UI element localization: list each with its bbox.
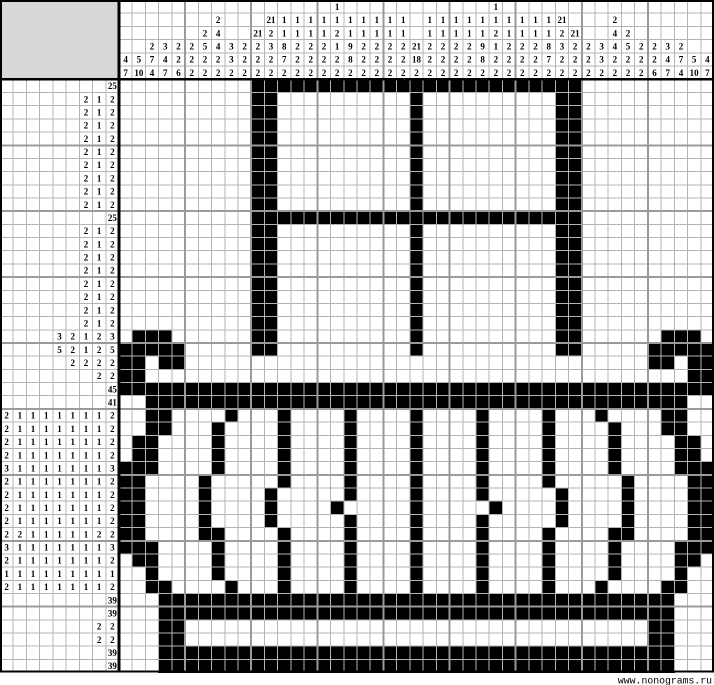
svg-text:2: 2 [4, 411, 9, 421]
svg-text:1: 1 [308, 15, 313, 25]
svg-text:2: 2 [308, 68, 313, 78]
svg-text:1: 1 [533, 28, 538, 38]
svg-text:1: 1 [31, 503, 36, 513]
svg-text:2: 2 [308, 41, 313, 51]
svg-text:1: 1 [97, 107, 102, 117]
svg-text:21: 21 [571, 28, 581, 38]
svg-text:1: 1 [70, 463, 75, 473]
svg-text:21: 21 [253, 28, 263, 38]
svg-text:1: 1 [70, 450, 75, 460]
svg-text:3: 3 [229, 55, 234, 65]
svg-text:1: 1 [84, 437, 89, 447]
svg-text:2: 2 [110, 556, 115, 566]
svg-text:2: 2 [176, 41, 181, 51]
svg-text:1: 1 [57, 516, 62, 526]
svg-text:5: 5 [626, 41, 631, 51]
svg-text:10: 10 [134, 68, 144, 78]
svg-text:2: 2 [97, 635, 102, 645]
svg-text:4: 4 [679, 68, 684, 78]
svg-text:1: 1 [454, 28, 459, 38]
svg-text:2: 2 [454, 68, 459, 78]
svg-text:2: 2 [533, 55, 538, 65]
svg-text:8: 8 [546, 41, 551, 51]
svg-text:1: 1 [520, 28, 525, 38]
svg-text:1: 1 [97, 582, 102, 592]
svg-text:2: 2 [388, 55, 393, 65]
svg-text:2: 2 [70, 345, 75, 355]
svg-text:1: 1 [97, 450, 102, 460]
svg-text:1: 1 [97, 121, 102, 131]
svg-text:1: 1 [18, 450, 23, 460]
svg-text:2: 2 [110, 437, 115, 447]
svg-text:2: 2 [322, 41, 327, 51]
svg-text:2: 2 [150, 41, 155, 51]
svg-text:1: 1 [18, 543, 23, 553]
svg-text:45: 45 [108, 384, 118, 394]
svg-text:2: 2 [84, 147, 89, 157]
svg-text:1: 1 [110, 569, 115, 579]
svg-text:2: 2 [256, 68, 261, 78]
svg-text:3: 3 [665, 41, 670, 51]
svg-text:2: 2 [70, 332, 75, 342]
svg-text:1: 1 [84, 529, 89, 539]
svg-text:1: 1 [480, 15, 485, 25]
svg-text:2: 2 [4, 529, 9, 539]
svg-text:2: 2 [533, 68, 538, 78]
svg-text:2: 2 [4, 503, 9, 513]
svg-text:4: 4 [123, 55, 128, 65]
svg-text:1: 1 [57, 424, 62, 434]
svg-text:2: 2 [4, 516, 9, 526]
svg-text:1: 1 [84, 332, 89, 342]
svg-text:2: 2 [110, 134, 115, 144]
svg-text:1: 1 [97, 318, 102, 328]
svg-text:25: 25 [108, 213, 118, 223]
svg-text:6: 6 [652, 68, 657, 78]
svg-text:1: 1 [97, 437, 102, 447]
svg-text:7: 7 [123, 68, 128, 78]
svg-text:2: 2 [494, 68, 499, 78]
svg-text:4: 4 [163, 55, 168, 65]
svg-text:4: 4 [150, 68, 155, 78]
svg-text:21: 21 [557, 15, 567, 25]
svg-text:2: 2 [520, 41, 525, 51]
svg-text:1: 1 [84, 450, 89, 460]
svg-text:1: 1 [57, 463, 62, 473]
svg-text:2: 2 [441, 68, 446, 78]
svg-text:2: 2 [599, 68, 604, 78]
svg-text:1: 1 [70, 411, 75, 421]
svg-text:2: 2 [348, 68, 353, 78]
svg-text:2: 2 [454, 55, 459, 65]
svg-text:2: 2 [361, 55, 366, 65]
svg-text:2: 2 [335, 55, 340, 65]
svg-text:2: 2 [97, 345, 102, 355]
svg-text:1: 1 [97, 424, 102, 434]
svg-text:2: 2 [176, 55, 181, 65]
svg-text:1: 1 [18, 516, 23, 526]
svg-text:2: 2 [4, 450, 9, 460]
svg-text:7: 7 [679, 55, 684, 65]
svg-text:2: 2 [639, 55, 644, 65]
svg-text:2: 2 [639, 41, 644, 51]
svg-text:1: 1 [70, 543, 75, 553]
svg-text:2: 2 [110, 503, 115, 513]
svg-text:2: 2 [507, 68, 512, 78]
svg-text:3: 3 [4, 543, 9, 553]
svg-text:1: 1 [31, 556, 36, 566]
svg-text:1: 1 [84, 503, 89, 513]
svg-text:1: 1 [70, 503, 75, 513]
svg-text:3: 3 [599, 55, 604, 65]
svg-text:1: 1 [295, 28, 300, 38]
svg-text:4: 4 [216, 28, 221, 38]
svg-text:1: 1 [57, 569, 62, 579]
svg-text:2: 2 [110, 424, 115, 434]
svg-text:2: 2 [388, 68, 393, 78]
svg-text:21: 21 [412, 41, 422, 51]
svg-text:1: 1 [57, 582, 62, 592]
svg-text:1: 1 [44, 411, 49, 421]
svg-text:1: 1 [57, 450, 62, 460]
svg-text:2: 2 [613, 15, 618, 25]
svg-text:1: 1 [70, 490, 75, 500]
svg-text:2: 2 [388, 41, 393, 51]
svg-text:1: 1 [44, 569, 49, 579]
svg-text:2: 2 [242, 55, 247, 65]
svg-text:1: 1 [322, 28, 327, 38]
svg-text:2: 2 [97, 529, 102, 539]
svg-text:2: 2 [84, 173, 89, 183]
svg-text:2: 2 [110, 147, 115, 157]
svg-text:2: 2 [84, 239, 89, 249]
svg-text:2: 2 [97, 332, 102, 342]
svg-text:1: 1 [84, 516, 89, 526]
svg-text:1: 1 [31, 569, 36, 579]
svg-text:1: 1 [361, 15, 366, 25]
svg-text:2: 2 [110, 358, 115, 368]
svg-text:2: 2 [97, 358, 102, 368]
svg-text:1: 1 [308, 28, 313, 38]
svg-text:2: 2 [4, 582, 9, 592]
svg-text:1: 1 [97, 160, 102, 170]
svg-text:2: 2 [84, 266, 89, 276]
svg-text:2: 2 [454, 41, 459, 51]
svg-text:1: 1 [84, 582, 89, 592]
svg-text:1: 1 [4, 569, 9, 579]
svg-text:3: 3 [110, 543, 115, 553]
svg-text:1: 1 [97, 94, 102, 104]
svg-text:2: 2 [203, 68, 208, 78]
svg-text:2: 2 [110, 94, 115, 104]
svg-text:2: 2 [110, 635, 115, 645]
svg-text:1: 1 [44, 450, 49, 460]
svg-text:1: 1 [97, 516, 102, 526]
svg-text:1: 1 [375, 15, 380, 25]
svg-text:2: 2 [560, 68, 565, 78]
svg-text:2: 2 [467, 41, 472, 51]
svg-text:1: 1 [84, 463, 89, 473]
svg-text:1: 1 [44, 503, 49, 513]
svg-text:2: 2 [84, 305, 89, 315]
svg-text:7: 7 [665, 68, 670, 78]
svg-text:3: 3 [269, 41, 274, 51]
svg-text:2: 2 [375, 55, 380, 65]
svg-text:1: 1 [97, 411, 102, 421]
svg-text:1: 1 [361, 28, 366, 38]
svg-text:1: 1 [18, 424, 23, 434]
svg-text:2: 2 [361, 68, 366, 78]
svg-text:9: 9 [348, 41, 353, 51]
svg-text:1: 1 [97, 239, 102, 249]
svg-text:2: 2 [573, 41, 578, 51]
svg-text:4: 4 [665, 55, 670, 65]
svg-text:2: 2 [18, 529, 23, 539]
svg-text:1: 1 [97, 147, 102, 157]
svg-text:2: 2 [639, 68, 644, 78]
svg-text:2: 2 [110, 200, 115, 210]
svg-text:2: 2 [97, 371, 102, 381]
svg-text:2: 2 [533, 41, 538, 51]
svg-text:2: 2 [110, 121, 115, 131]
svg-text:2: 2 [401, 68, 406, 78]
svg-text:1: 1 [348, 28, 353, 38]
svg-text:2: 2 [652, 55, 657, 65]
svg-text:1: 1 [31, 490, 36, 500]
svg-text:2: 2 [110, 266, 115, 276]
svg-text:1: 1 [335, 15, 340, 25]
svg-text:2: 2 [586, 41, 591, 51]
svg-text:1: 1 [97, 134, 102, 144]
svg-text:2: 2 [203, 28, 208, 38]
svg-text:1: 1 [18, 437, 23, 447]
svg-text:8: 8 [282, 41, 287, 51]
svg-text:2: 2 [375, 41, 380, 51]
svg-text:2: 2 [84, 134, 89, 144]
svg-text:1: 1 [84, 543, 89, 553]
svg-text:2: 2 [441, 55, 446, 65]
svg-text:1: 1 [388, 28, 393, 38]
svg-text:2: 2 [110, 529, 115, 539]
svg-text:1: 1 [31, 463, 36, 473]
svg-text:1: 1 [507, 28, 512, 38]
svg-text:1: 1 [44, 543, 49, 553]
svg-text:1: 1 [295, 15, 300, 25]
svg-text:1: 1 [97, 477, 102, 487]
svg-text:1: 1 [494, 41, 499, 51]
svg-text:1: 1 [97, 173, 102, 183]
svg-text:1: 1 [31, 437, 36, 447]
svg-text:2: 2 [467, 55, 472, 65]
svg-text:1: 1 [18, 490, 23, 500]
svg-text:1: 1 [388, 15, 393, 25]
svg-text:1: 1 [18, 556, 23, 566]
svg-text:3: 3 [110, 463, 115, 473]
svg-text:1: 1 [84, 556, 89, 566]
svg-text:1: 1 [84, 345, 89, 355]
svg-text:2: 2 [189, 68, 194, 78]
svg-text:2: 2 [256, 41, 261, 51]
svg-text:1: 1 [18, 477, 23, 487]
svg-text:3: 3 [110, 332, 115, 342]
svg-text:2: 2 [335, 68, 340, 78]
svg-text:5: 5 [110, 345, 115, 355]
svg-text:1: 1 [507, 15, 512, 25]
svg-text:2: 2 [84, 279, 89, 289]
svg-text:1: 1 [467, 28, 472, 38]
svg-text:2: 2 [110, 253, 115, 263]
svg-text:1: 1 [84, 424, 89, 434]
svg-text:2: 2 [467, 68, 472, 78]
svg-text:1: 1 [44, 556, 49, 566]
svg-text:2: 2 [361, 41, 366, 51]
svg-text:2: 2 [70, 358, 75, 368]
svg-text:1: 1 [520, 15, 525, 25]
svg-text:2: 2 [613, 68, 618, 78]
svg-text:1: 1 [31, 450, 36, 460]
svg-text:2: 2 [110, 318, 115, 328]
svg-text:3: 3 [560, 41, 565, 51]
svg-text:1: 1 [348, 15, 353, 25]
svg-text:2: 2 [586, 55, 591, 65]
svg-text:2: 2 [520, 55, 525, 65]
svg-text:2: 2 [84, 226, 89, 236]
svg-text:2: 2 [586, 68, 591, 78]
svg-text:2: 2 [229, 68, 234, 78]
svg-text:1: 1 [57, 477, 62, 487]
svg-text:1: 1 [84, 477, 89, 487]
svg-text:1: 1 [70, 477, 75, 487]
svg-text:3: 3 [229, 41, 234, 51]
svg-text:2: 2 [375, 68, 380, 78]
svg-text:2: 2 [110, 239, 115, 249]
svg-text:6: 6 [176, 68, 181, 78]
svg-text:3: 3 [163, 41, 168, 51]
svg-text:2: 2 [546, 68, 551, 78]
svg-text:2: 2 [216, 68, 221, 78]
svg-text:1: 1 [84, 490, 89, 500]
svg-text:25: 25 [108, 81, 118, 91]
svg-text:9: 9 [480, 41, 485, 51]
svg-text:1: 1 [70, 582, 75, 592]
svg-text:2: 2 [216, 55, 221, 65]
svg-text:1: 1 [57, 543, 62, 553]
svg-text:1: 1 [97, 305, 102, 315]
svg-text:2: 2 [494, 28, 499, 38]
svg-text:3: 3 [4, 463, 9, 473]
svg-text:1: 1 [18, 463, 23, 473]
svg-text:2: 2 [573, 68, 578, 78]
svg-text:1: 1 [97, 253, 102, 263]
svg-text:2: 2 [97, 622, 102, 632]
svg-text:1: 1 [57, 437, 62, 447]
svg-text:2: 2 [427, 68, 432, 78]
svg-text:1: 1 [44, 477, 49, 487]
svg-text:39: 39 [108, 648, 118, 658]
svg-text:2: 2 [110, 411, 115, 421]
svg-text:1: 1 [44, 424, 49, 434]
svg-text:2: 2 [84, 253, 89, 263]
svg-text:2: 2 [216, 15, 221, 25]
svg-text:7: 7 [150, 55, 155, 65]
svg-text:1: 1 [494, 2, 499, 12]
svg-text:2: 2 [84, 160, 89, 170]
svg-text:2: 2 [520, 68, 525, 78]
svg-text:2: 2 [560, 28, 565, 38]
svg-text:1: 1 [427, 15, 432, 25]
svg-text:1: 1 [31, 529, 36, 539]
svg-text:2: 2 [110, 187, 115, 197]
svg-text:2: 2 [4, 556, 9, 566]
svg-text:1: 1 [18, 503, 23, 513]
svg-text:1: 1 [97, 463, 102, 473]
svg-text:2: 2 [295, 55, 300, 65]
svg-text:1: 1 [546, 28, 551, 38]
svg-text:1: 1 [401, 28, 406, 38]
svg-text:1: 1 [282, 28, 287, 38]
svg-text:2: 2 [242, 68, 247, 78]
svg-text:3: 3 [57, 332, 62, 342]
svg-text:1: 1 [57, 556, 62, 566]
svg-text:7: 7 [705, 68, 710, 78]
svg-text:2: 2 [626, 55, 631, 65]
svg-text:7: 7 [163, 68, 168, 78]
svg-text:2: 2 [626, 28, 631, 38]
svg-text:2: 2 [84, 292, 89, 302]
svg-text:2: 2 [110, 477, 115, 487]
svg-text:1: 1 [44, 516, 49, 526]
svg-text:1: 1 [31, 543, 36, 553]
svg-text:1: 1 [70, 516, 75, 526]
svg-text:1: 1 [97, 187, 102, 197]
svg-text:7: 7 [546, 55, 551, 65]
svg-text:4: 4 [216, 41, 221, 51]
svg-text:2: 2 [110, 173, 115, 183]
svg-text:2: 2 [494, 55, 499, 65]
svg-text:1: 1 [57, 490, 62, 500]
svg-text:1: 1 [375, 28, 380, 38]
svg-text:5: 5 [57, 345, 62, 355]
svg-text:1: 1 [57, 411, 62, 421]
svg-text:2: 2 [84, 94, 89, 104]
svg-text:2: 2 [110, 107, 115, 117]
svg-text:2: 2 [679, 41, 684, 51]
svg-text:2: 2 [308, 55, 313, 65]
svg-text:39: 39 [108, 661, 118, 671]
svg-text:1: 1 [335, 2, 340, 12]
svg-text:2: 2 [110, 305, 115, 315]
svg-text:2: 2 [189, 41, 194, 51]
svg-text:1: 1 [18, 582, 23, 592]
svg-text:1: 1 [441, 28, 446, 38]
svg-text:41: 41 [108, 398, 118, 408]
svg-text:1: 1 [18, 411, 23, 421]
svg-text:2: 2 [84, 358, 89, 368]
svg-text:2: 2 [401, 41, 406, 51]
svg-text:2: 2 [414, 68, 419, 78]
svg-text:4: 4 [613, 28, 618, 38]
svg-text:1: 1 [70, 529, 75, 539]
svg-text:2: 2 [427, 55, 432, 65]
svg-text:2: 2 [110, 450, 115, 460]
svg-text:1: 1 [97, 569, 102, 579]
svg-text:1: 1 [44, 490, 49, 500]
svg-text:1: 1 [533, 15, 538, 25]
svg-text:2: 2 [560, 55, 565, 65]
svg-text:4: 4 [613, 41, 618, 51]
svg-text:1: 1 [427, 28, 432, 38]
svg-text:1: 1 [97, 556, 102, 566]
